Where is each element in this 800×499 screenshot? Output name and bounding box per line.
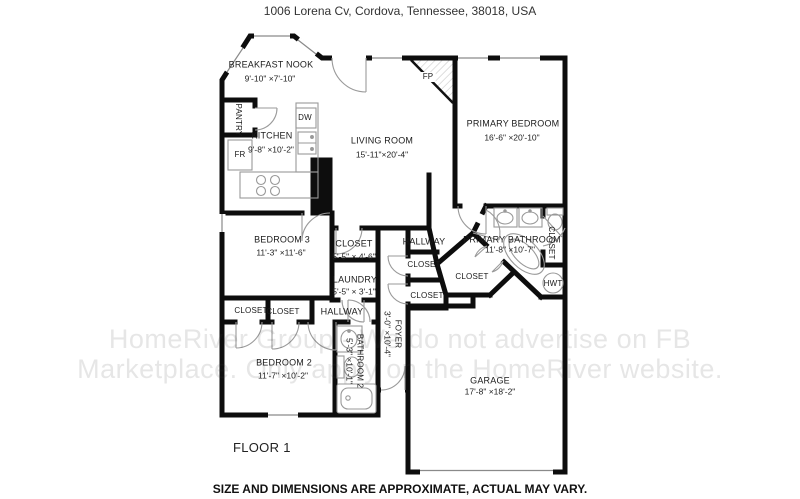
room-dims-breakfast-nook: 9'-10" ×7'-10" — [245, 74, 296, 85]
room-label-kitchen: KITCHEN — [252, 130, 293, 141]
room-label-hallway-lower: HALLWAY — [321, 306, 364, 317]
room-dims-primary-bathroom: 11'-8" ×10'-7" — [485, 245, 535, 256]
room-label-closet-bedroom2-left: CLOSET — [234, 306, 267, 316]
room-label-closet-bedroom2-right: CLOSET — [266, 307, 299, 317]
room-dims-closet-bedroom3: 5'-5" × 4'-6" — [332, 252, 376, 263]
room-label-primary-bedroom: PRIMARY BEDROOM — [467, 118, 560, 129]
fridge-icon-label: FR — [234, 150, 245, 160]
room-label-closet-linen: CLOSET — [546, 226, 556, 259]
room-label-bedroom-3: BEDROOM 3 — [254, 234, 310, 245]
watermark-line-1: HomeRiver Group - We do not advertise on… — [0, 324, 800, 355]
watermark-line-2: Marketplace. Only apply on the HomeRiver… — [0, 354, 800, 385]
room-label-laundry: LAUNDRY — [333, 274, 377, 285]
room-label-living-room: LIVING ROOM — [351, 135, 413, 146]
room-label-breakfast-nook: BREAKFAST NOOK — [229, 59, 314, 70]
room-label-closet-foyer-upper: CLOSET — [407, 260, 440, 270]
room-dims-laundry: 5'-5" × 3'-1" — [332, 287, 376, 298]
room-label-closet-foyer-lower: CLOSET — [410, 291, 443, 301]
room-dims-primary-bedroom: 16'-6" ×20'-10" — [484, 133, 539, 144]
room-label-hallway-upper: HALLWAY — [403, 236, 446, 247]
floor-label: FLOOR 1 — [233, 440, 291, 455]
floor-plan-drawing — [0, 0, 800, 499]
room-label-closet-bedroom3: CLOSET — [335, 238, 372, 249]
room-label-closet-walkin: CLOSET — [455, 272, 488, 282]
room-dims-garage: 17'-8" ×18'-2" — [465, 387, 516, 398]
dishwasher-icon-label: DW — [298, 113, 312, 123]
disclaimer-text: SIZE AND DIMENSIONS ARE APPROXIMATE, ACT… — [0, 482, 800, 496]
fireplace-label: FP — [421, 72, 436, 82]
room-label-pantry: PANTRY — [233, 104, 243, 137]
room-dims-living-room: 15'-11"×20'-4" — [356, 150, 408, 161]
floor-plan-page: 1006 Lorena Cv, Cordova, Tennessee, 3801… — [0, 0, 800, 499]
room-dims-kitchen: 9'-8" ×10'-2" — [248, 145, 294, 156]
room-dims-bedroom-3: 11'-3" ×11'-6" — [256, 248, 305, 259]
water-heater-label: HWT — [544, 279, 563, 289]
